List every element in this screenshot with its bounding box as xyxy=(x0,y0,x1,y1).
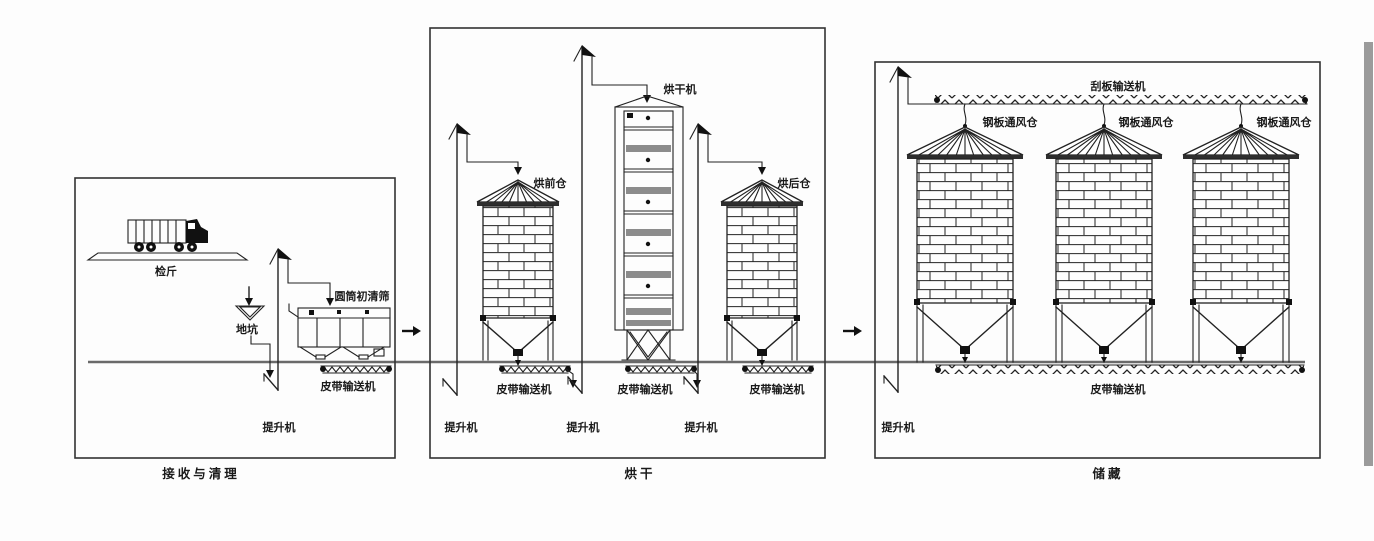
drying-section-title: 烘干 xyxy=(624,466,655,481)
drying-elevator-3-label: 提升机 xyxy=(685,420,718,434)
receiving-elevator-label: 提升机 xyxy=(263,420,296,434)
weighbridge-label: 检斤 xyxy=(155,264,177,278)
scan-edge-bar xyxy=(1364,42,1373,466)
storage-elevator-label: 提升机 xyxy=(882,420,915,434)
drying-belt-conveyor-2-label: 皮带输送机 xyxy=(617,382,673,396)
scraper-conveyor-label: 刮板输送机 xyxy=(1091,79,1146,93)
pre-dry-bin-label: 烘前仓 xyxy=(534,176,568,190)
drying-elevator-1-label: 提升机 xyxy=(445,420,478,434)
receiving-section-title: 接收与清理 xyxy=(162,466,240,481)
page-background xyxy=(0,0,1374,541)
diagram-canvas: 检斤 地坑 提升机 xyxy=(0,0,1374,541)
dryer-label: 烘干机 xyxy=(664,82,697,96)
scraper-conveyor xyxy=(934,95,1308,104)
storage-belt-conveyor-label: 皮带输送机 xyxy=(1090,382,1146,396)
storage-section-title: 储藏 xyxy=(1091,466,1123,481)
vent-bin-3-label: 钢板通风仓 xyxy=(1257,115,1313,129)
pit-label: 地坑 xyxy=(236,322,258,336)
drum-precleaner-label: 圆筒初清筛 xyxy=(335,289,390,303)
vent-bin-2-label: 钢板通风仓 xyxy=(1119,115,1175,129)
post-dry-bin-label: 烘后仓 xyxy=(778,176,812,190)
drying-belt-conveyor-1-label: 皮带输送机 xyxy=(496,382,552,396)
drying-belt-conveyor-3-label: 皮带输送机 xyxy=(749,382,805,396)
storage-belt-conveyor xyxy=(935,365,1305,374)
receiving-belt-conveyor-label: 皮带输送机 xyxy=(320,379,376,393)
vent-bin-1-label: 钢板通风仓 xyxy=(983,115,1039,129)
drying-elevator-2-label: 提升机 xyxy=(567,420,600,434)
